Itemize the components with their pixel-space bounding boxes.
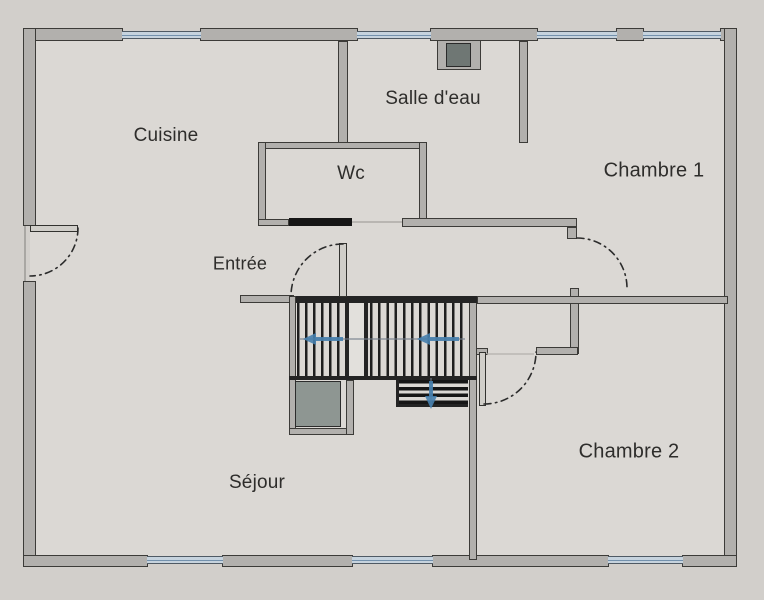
wall-bottom-2 (222, 555, 353, 567)
floor-plan: Cuisine Salle d'eau Wc Chambre 1 Entrée … (0, 0, 764, 600)
wall-chambre2-north (536, 347, 578, 355)
stair-duct-box-right (346, 380, 354, 435)
wall-chambre1-chambre2 (477, 296, 728, 304)
wall-entree-stub (240, 295, 294, 303)
entree-door-leaf (339, 243, 347, 297)
wall-wc-top (258, 142, 427, 149)
stair-arrow-down-icon (425, 396, 437, 409)
window-bottom-2 (352, 556, 433, 564)
chambre2-door-leaf (479, 352, 486, 406)
wall-chambre1-door-jamb (567, 227, 577, 239)
stair-duct-box-bottom (289, 428, 354, 435)
wall-bottom-corner (682, 555, 737, 567)
stair-arrow-left-2-tail (429, 337, 459, 341)
window-top-3 (537, 31, 617, 39)
wall-bottom-1 (23, 555, 148, 567)
room-label-sejour: Séjour (229, 472, 285, 494)
left-door-threshold-line (24, 226, 26, 281)
window-top-4 (643, 31, 721, 39)
stair-arrow-left-1-tail (315, 337, 343, 341)
chimney-flue-icon (446, 43, 471, 67)
wall-sejour-chambre2 (469, 296, 477, 560)
room-label-chambre2: Chambre 2 (579, 441, 680, 464)
window-top-1 (122, 31, 201, 39)
wall-wc-bottom-left (258, 219, 289, 226)
room-label-wc: Wc (337, 163, 365, 185)
wall-top-4 (616, 28, 644, 41)
wall-wc-left (258, 142, 266, 226)
wall-entree-north (402, 218, 577, 227)
left-exterior-door-leaf (30, 225, 78, 232)
wall-wc-right (419, 142, 427, 226)
wc-door-opening-line (352, 221, 402, 223)
stair-well-gap (349, 303, 364, 377)
window-bottom-3 (608, 556, 683, 564)
window-top-2 (357, 31, 431, 39)
wall-left-upper (23, 28, 36, 226)
stair-center-stringer-right (364, 303, 368, 377)
window-bottom-1 (147, 556, 223, 564)
wall-left-lower (23, 281, 36, 567)
room-label-chambre1: Chambre 1 (604, 160, 705, 183)
stair-arrow-down-tail (429, 381, 433, 397)
room-label-salle-deau: Salle d'eau (385, 88, 481, 110)
stair-well-edge (289, 296, 477, 303)
wall-salledeau-chambre1 (519, 41, 528, 143)
wall-bottom-3 (432, 555, 609, 567)
stair-duct-square (295, 381, 341, 427)
wc-sliding-door (289, 218, 352, 226)
wall-cuisine-salledeau (338, 41, 348, 143)
wall-top-2 (200, 28, 358, 41)
room-label-entree: Entrée (213, 254, 267, 275)
wall-top-1 (23, 28, 123, 41)
room-label-cuisine: Cuisine (134, 125, 199, 147)
